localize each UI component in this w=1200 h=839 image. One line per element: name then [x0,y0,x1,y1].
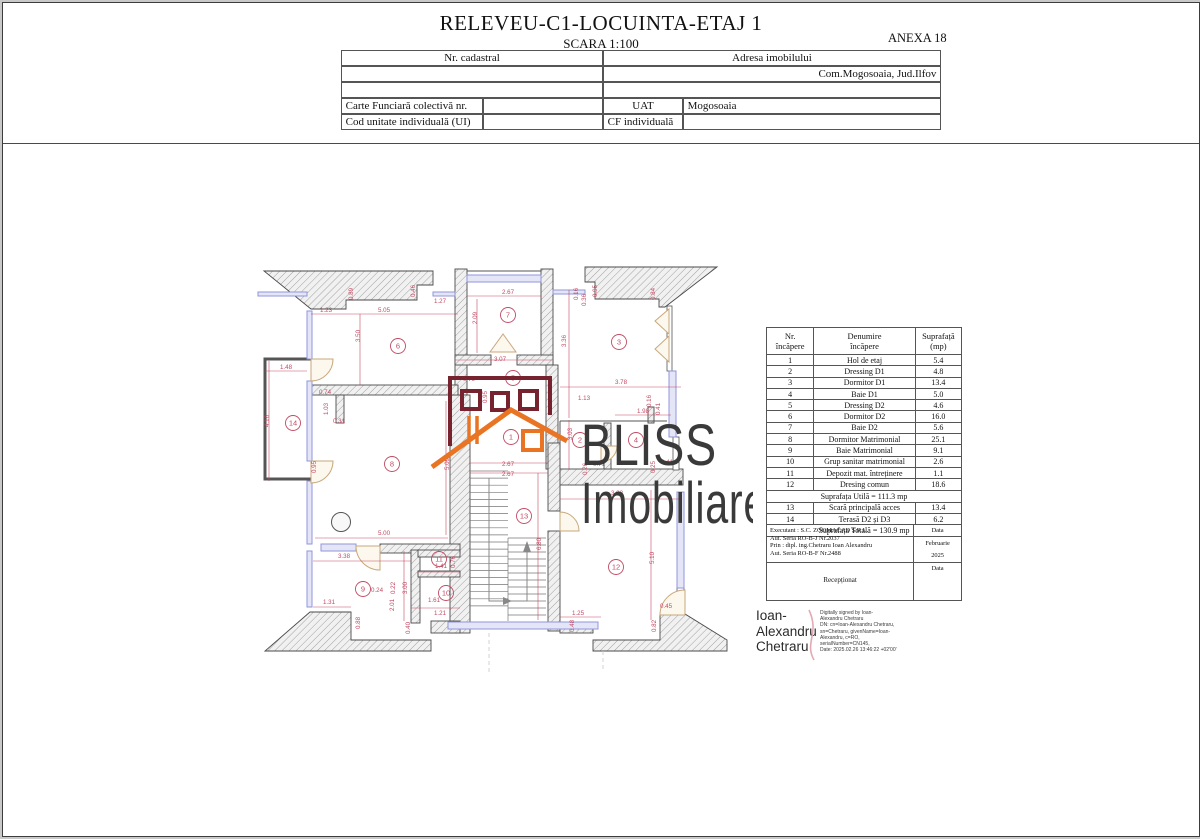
table-cell: 7 [767,422,814,433]
uat-label: UAT [603,98,684,115]
dimension-label: 1.25 [572,610,585,617]
data-month: Februarie [917,540,958,548]
table-cell: 25.1 [915,434,961,445]
table-cell: 6.2 [915,513,961,524]
nr-cadastral-label: Nr. cadastral [341,50,604,67]
table-cell: Dresing comun [814,479,916,490]
dimension-label: 0.95 [311,460,318,473]
table-cell: 13.4 [915,377,961,388]
table-cell: 4.8 [915,366,961,377]
dimension-label: 0.40 [405,621,412,634]
table-row: 8Dormitor Matrimonial25.1 [767,434,962,445]
adresa-label: Adresa imobilului [603,50,942,67]
door-triangle [490,334,516,352]
dimension-label: 3.38 [338,553,351,560]
table-cell: 5.6 [915,422,961,433]
table-cell: Dormitor D2 [814,411,916,422]
table-cell: 2 [767,366,814,377]
guide-lines [489,633,603,673]
dimension-label: 1.21 [434,610,447,617]
executant-info: Executant : S.C. ZOOMACAD S.R.L.Aut. Ser… [767,525,914,563]
room-table: Nr.încăpere Denumireîncăpere Suprafață(m… [766,327,962,537]
room-number-text: 3 [617,338,621,347]
dimension-label: 1.13 [578,395,591,402]
room-number: 7 [501,308,516,323]
dimension-label: 0.48 [569,619,576,632]
room-number-text: 12 [612,563,620,572]
room-number-text: 8 [390,460,394,469]
dimension-label: 0.95 [592,284,599,297]
table-cell: 1.1 [915,467,961,478]
dimension-label: 3.00 [402,581,409,594]
table-cell: 14 [767,513,814,524]
table-row: 14Terasă D2 și D36.2 [767,513,962,524]
dimension-label: 2.67 [502,461,515,468]
dimension-label: 2.09 [472,311,479,324]
data-label: Data [917,527,958,535]
dimension-label: 3.50 [355,329,362,342]
nr-cadastral-value [341,66,604,83]
table-cell: Baie D2 [814,422,916,433]
table-cell: 18.6 [915,479,961,490]
dimension-label: 0.82 [651,619,658,632]
room-number: 1 [504,430,519,445]
executant-line: Aut. Seria RO-B-F Nr.2488 [770,550,910,558]
dimension-label: 3.07 [494,356,507,363]
executant-date: Data Februarie 2025 [914,525,962,563]
executant-line: Prin : dipl. ing.Chetraru Ioan Alexandru [770,542,910,550]
dimension-label: 0.46 [410,284,417,297]
signature-details: Digitally signed by Ioan-Alexandru Chetr… [820,610,915,653]
table-cell: Dressing D1 [814,366,916,377]
dimension-label: 1.61 [428,597,441,604]
receptionat-date-label: Data [914,562,962,600]
cf-label: CF individuală [603,114,684,131]
table-row: 1Hol de etaj5.4 [767,355,962,366]
room-number: 6 [391,339,406,354]
dimension-label: 0.16 [573,287,580,300]
stairs [470,471,546,621]
table-row: 7Baie D25.6 [767,422,962,433]
header-divider [3,143,1199,144]
room-number: 9 [356,582,371,597]
room-table-body: Nr.încăpere Denumireîncăpere Suprafață(m… [767,328,962,537]
table-row: 9Baie Matrimonial9.1 [767,445,962,456]
adresa-value: Com.Mogosoaia, Jud.Ilfov [603,66,942,83]
dimension-label: 1.23 [320,307,333,314]
watermark-line1: BLISS [581,413,717,478]
dimension-label: 0.24 [371,587,384,594]
room-number-text: 6 [396,342,400,351]
table-cell: Hol de etaj [814,355,916,366]
table-row: Suprafața Utilă = 111.3 mp [767,490,962,502]
room-number: 13 [517,509,532,524]
door-triangle [655,309,669,334]
table-cell: Scară principală acces [814,502,916,513]
table-cell: Terasă D2 și D3 [814,513,916,524]
dimension-label: 0.16 [646,394,653,407]
table-row: 4Baie D15.0 [767,388,962,399]
table-row: 10Grup sanitar matrimonial2.6 [767,456,962,467]
room-number: 3 [612,335,627,350]
table-cell: 11 [767,467,814,478]
room-number-text: 14 [289,419,297,428]
page-title: RELEVEU-C1-LOCUINTA-ETAJ 1 [3,11,1199,36]
table-cell: Dormitor D1 [814,377,916,388]
room-number: 14 [286,416,301,431]
dimension-label: 0.84 [650,287,657,300]
dimension-label: 0.89 [348,287,355,300]
dimension-label: 5.00 [378,530,391,537]
room-number-text: 11 [435,555,443,564]
dimension-label: 5.05 [378,307,391,314]
table-cell: 5.0 [915,388,961,399]
annex-label: ANEXA 18 [888,31,947,46]
table-cell: 13 [767,502,814,513]
summary-cell: Suprafața Utilă = 111.3 mp [767,490,962,502]
table-cell: 16.0 [915,411,961,422]
room-table-header: Nr.încăpere Denumireîncăpere Suprafață(m… [767,328,962,355]
table-row: 6Dormitor D216.0 [767,411,962,422]
table-cell: Depozit mat. întreținere [814,467,916,478]
cadastral-table: Nr. cadastral Adresa imobilului Com.Mogo… [341,50,941,130]
data-year: 2025 [917,552,958,560]
table-cell: 4 [767,388,814,399]
dimension-label: 2.67 [502,471,515,478]
table-row: 13Scară principală acces13.4 [767,502,962,513]
receptionat-label: Recepționat [767,562,914,600]
table-cell: Dressing D2 [814,400,916,411]
dimension-label: 1.27 [434,298,447,305]
table-cell: 9 [767,445,814,456]
table-row: 12Dresing comun18.6 [767,479,962,490]
empty-cell [683,114,942,131]
table-cell: 13.4 [915,502,961,513]
document-page: RELEVEU-C1-LOCUINTA-ETAJ 1 SCARA 1:100 A… [2,2,1200,837]
room-number: 12 [609,560,624,575]
empty-cell [603,82,942,99]
watermark-line2: Imobiliare [581,471,753,536]
dimension-label: 0.95 [482,390,489,403]
room-number: 8 [385,457,400,472]
table-cell: Grup sanitar matrimonial [814,456,916,467]
dimension-label: 0.36 [581,293,588,306]
table-row: 3Dormitor D113.4 [767,377,962,388]
table-cell: Dormitor Matrimonial [814,434,916,445]
dimension-label: 0.45 [660,603,673,610]
carte-funciara-label: Carte Funciară colectivă nr. [341,98,484,115]
table-cell: 8 [767,434,814,445]
executant-block: Executant : S.C. ZOOMACAD S.R.L.Aut. Ser… [766,524,962,601]
signature-flourish [802,606,822,664]
stair-arrow [489,478,531,605]
column [332,513,351,532]
room-number-text: 7 [506,311,510,320]
executant-line: Aut. Seria RO-B-J Nr.2037 [770,535,910,543]
dimension-label: 0.31 [333,418,346,425]
executant-line: Executant : S.C. ZOOMACAD S.R.L. [770,527,910,535]
table-cell: 4.6 [915,400,961,411]
empty-cell [483,114,604,131]
table-cell: 10 [767,456,814,467]
room-number-text: 9 [361,585,365,594]
table-cell: 3 [767,377,814,388]
dimension-label: 2.67 [502,289,515,296]
signature-detail-line: Date: 2025.02.26 13:46:22 +02'00' [820,647,915,653]
door-triangle [655,336,669,362]
table-cell: 2.6 [915,456,961,467]
dimension-label: 3.78 [615,379,628,386]
table-cell: 1 [767,355,814,366]
dimension-label: 1.48 [280,364,293,371]
table-row: 2Dressing D14.8 [767,366,962,377]
dimension-label: 1.31 [323,599,336,606]
floor-plan: 1.235.050.893.500.461.272.672.093.070.16… [253,218,753,678]
dimension-label: 0.74 [319,389,332,396]
table-row: 11Depozit mat. întreținere1.1 [767,467,962,478]
table-cell: 5.4 [915,355,961,366]
table-row: 5Dressing D24.6 [767,400,962,411]
dimension-label: 0.76 [450,555,457,568]
empty-cell [341,82,604,99]
dimension-label: 4.16 [264,414,271,427]
table-cell: Baie D1 [814,388,916,399]
room-number-text: 13 [520,512,528,521]
room-number-text: 10 [442,589,450,598]
dimension-label: 2.01 [389,598,396,611]
table-cell: 6 [767,411,814,422]
empty-cell [483,98,604,115]
dimension-label: 0.22 [390,581,397,594]
table-cell: Baie Matrimonial [814,445,916,456]
uat-value: Mogosoaia [683,98,942,115]
table-cell: 5 [767,400,814,411]
table-cell: 12 [767,479,814,490]
dimension-label: 5.10 [649,551,656,564]
cod-unitate-label: Cod unitate individuală (UI) [341,114,484,131]
dimension-label: 3.36 [561,334,568,347]
room-number-text: 1 [509,433,513,442]
dimension-label: 6.80 [536,537,543,550]
dimension-label: 0.88 [355,616,362,629]
table-cell: 9.1 [915,445,961,456]
dimension-label: 1.03 [323,402,330,415]
